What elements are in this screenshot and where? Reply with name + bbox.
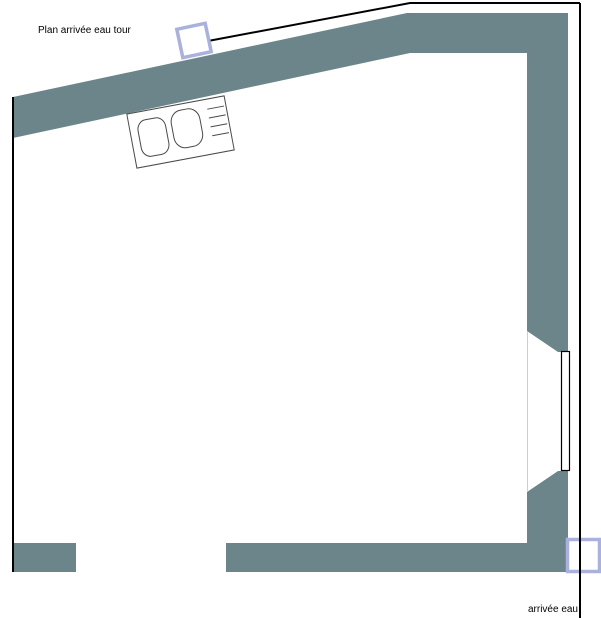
wall-bottom-left-segment [13, 543, 76, 572]
wall-bottom-right [226, 471, 568, 572]
floor-plan-canvas: Plan arrivée eau tour arrivée eau [0, 0, 601, 618]
water-inlet-marker-bottom [568, 540, 600, 572]
plan-title-label: Plan arrivée eau tour [38, 25, 132, 36]
floor-plan: Plan arrivée eau tour arrivée eau [0, 0, 601, 618]
water-inlet-label: arrivée eau [528, 604, 578, 615]
window [562, 352, 570, 471]
water-inlet-marker-top [177, 23, 211, 57]
wall-top-and-right [13, 13, 568, 352]
